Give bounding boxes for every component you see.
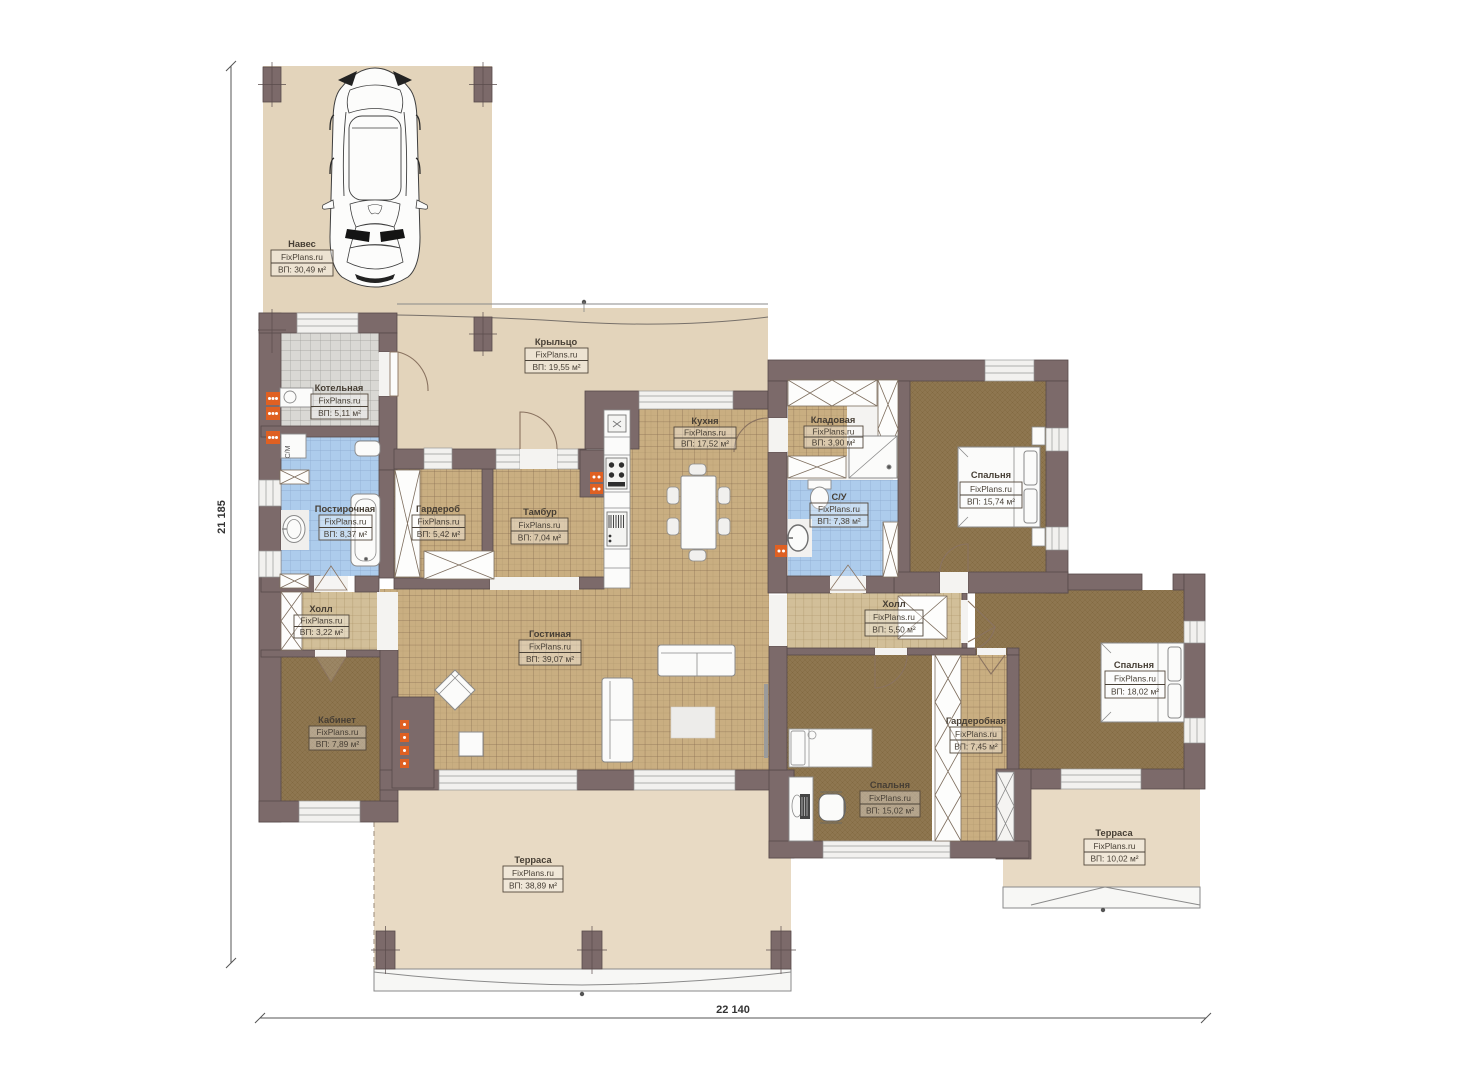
svg-text:Кладовая: Кладовая (811, 415, 856, 425)
svg-text:ВП: 38,89 м²: ВП: 38,89 м² (509, 881, 557, 891)
svg-text:ВП: 8,37 м²: ВП: 8,37 м² (324, 529, 368, 539)
svg-text:Гостиная: Гостиная (529, 629, 571, 639)
svg-text:Холл: Холл (882, 599, 905, 609)
svg-text:Гардеробная: Гардеробная (946, 716, 1006, 726)
svg-text:ВП: 7,38 м²: ВП: 7,38 м² (817, 516, 861, 526)
svg-text:ВП: 19,55 м²: ВП: 19,55 м² (532, 362, 580, 372)
svg-text:ВП: 30,49 м²: ВП: 30,49 м² (278, 265, 326, 275)
svg-text:FixPlans.ru: FixPlans.ru (955, 729, 997, 739)
svg-text:ВП: 5,42 м²: ВП: 5,42 м² (417, 529, 461, 539)
svg-text:ВП: 5,50 м²: ВП: 5,50 м² (872, 625, 916, 635)
svg-text:ВП: 7,89 м²: ВП: 7,89 м² (316, 739, 360, 749)
svg-text:FixPlans.ru: FixPlans.ru (536, 350, 578, 360)
svg-text:ВП: 39,07 м²: ВП: 39,07 м² (526, 654, 574, 664)
svg-text:FixPlans.ru: FixPlans.ru (418, 517, 460, 527)
svg-text:FixPlans.ru: FixPlans.ru (818, 504, 860, 514)
svg-text:ВП: 10,02 м²: ВП: 10,02 м² (1090, 854, 1138, 864)
svg-text:Терраса: Терраса (514, 855, 552, 865)
svg-text:FixPlans.ru: FixPlans.ru (873, 612, 915, 622)
svg-text:Холл: Холл (309, 604, 332, 614)
svg-text:FixPlans.ru: FixPlans.ru (301, 616, 343, 626)
svg-text:Гардероб: Гардероб (416, 504, 460, 514)
svg-text:ВП: 7,04 м²: ВП: 7,04 м² (518, 533, 562, 543)
svg-text:FixPlans.ru: FixPlans.ru (970, 484, 1012, 494)
svg-text:Навес: Навес (288, 239, 316, 249)
svg-text:22 140: 22 140 (716, 1004, 750, 1016)
svg-text:FixPlans.ru: FixPlans.ru (869, 793, 911, 803)
svg-text:Спальня: Спальня (1114, 660, 1154, 670)
svg-text:Спальня: Спальня (870, 780, 910, 790)
svg-text:FixPlans.ru: FixPlans.ru (325, 517, 367, 527)
svg-text:FixPlans.ru: FixPlans.ru (319, 396, 361, 406)
svg-text:FixPlans.ru: FixPlans.ru (1114, 674, 1156, 684)
svg-text:Спальня: Спальня (971, 470, 1011, 480)
svg-text:С/М: С/М (285, 445, 292, 458)
svg-text:Крыльцо: Крыльцо (535, 337, 578, 347)
svg-text:FixPlans.ru: FixPlans.ru (1094, 841, 1136, 851)
svg-text:С/У: С/У (831, 492, 846, 502)
svg-text:FixPlans.ru: FixPlans.ru (317, 727, 359, 737)
svg-text:Постирочная: Постирочная (315, 504, 375, 514)
svg-text:ВП: 17,52 м²: ВП: 17,52 м² (681, 439, 729, 449)
svg-text:21 185: 21 185 (216, 500, 228, 534)
svg-text:Тамбур: Тамбур (523, 507, 557, 517)
svg-text:Кабинет: Кабинет (318, 715, 356, 725)
svg-text:ВП: 3,90 м²: ВП: 3,90 м² (812, 438, 856, 448)
svg-text:ВП: 7,45 м²: ВП: 7,45 м² (954, 742, 998, 752)
svg-text:FixPlans.ru: FixPlans.ru (529, 642, 571, 652)
svg-text:ВП: 15,02 м²: ВП: 15,02 м² (866, 806, 914, 816)
svg-text:FixPlans.ru: FixPlans.ru (519, 520, 561, 530)
svg-text:FixPlans.ru: FixPlans.ru (684, 428, 726, 438)
svg-text:FixPlans.ru: FixPlans.ru (813, 427, 855, 437)
svg-text:Котельная: Котельная (315, 383, 364, 393)
svg-text:ВП: 3,22 м²: ВП: 3,22 м² (300, 627, 344, 637)
svg-text:FixPlans.ru: FixPlans.ru (512, 868, 554, 878)
svg-text:ВП: 15,74 м²: ВП: 15,74 м² (967, 497, 1015, 507)
svg-text:ВП: 18,02 м²: ВП: 18,02 м² (1111, 687, 1159, 697)
svg-text:Кухня: Кухня (691, 416, 718, 426)
svg-text:Терраса: Терраса (1095, 828, 1133, 838)
svg-text:FixPlans.ru: FixPlans.ru (281, 252, 323, 262)
svg-text:ВП: 5,11 м²: ВП: 5,11 м² (318, 408, 361, 418)
